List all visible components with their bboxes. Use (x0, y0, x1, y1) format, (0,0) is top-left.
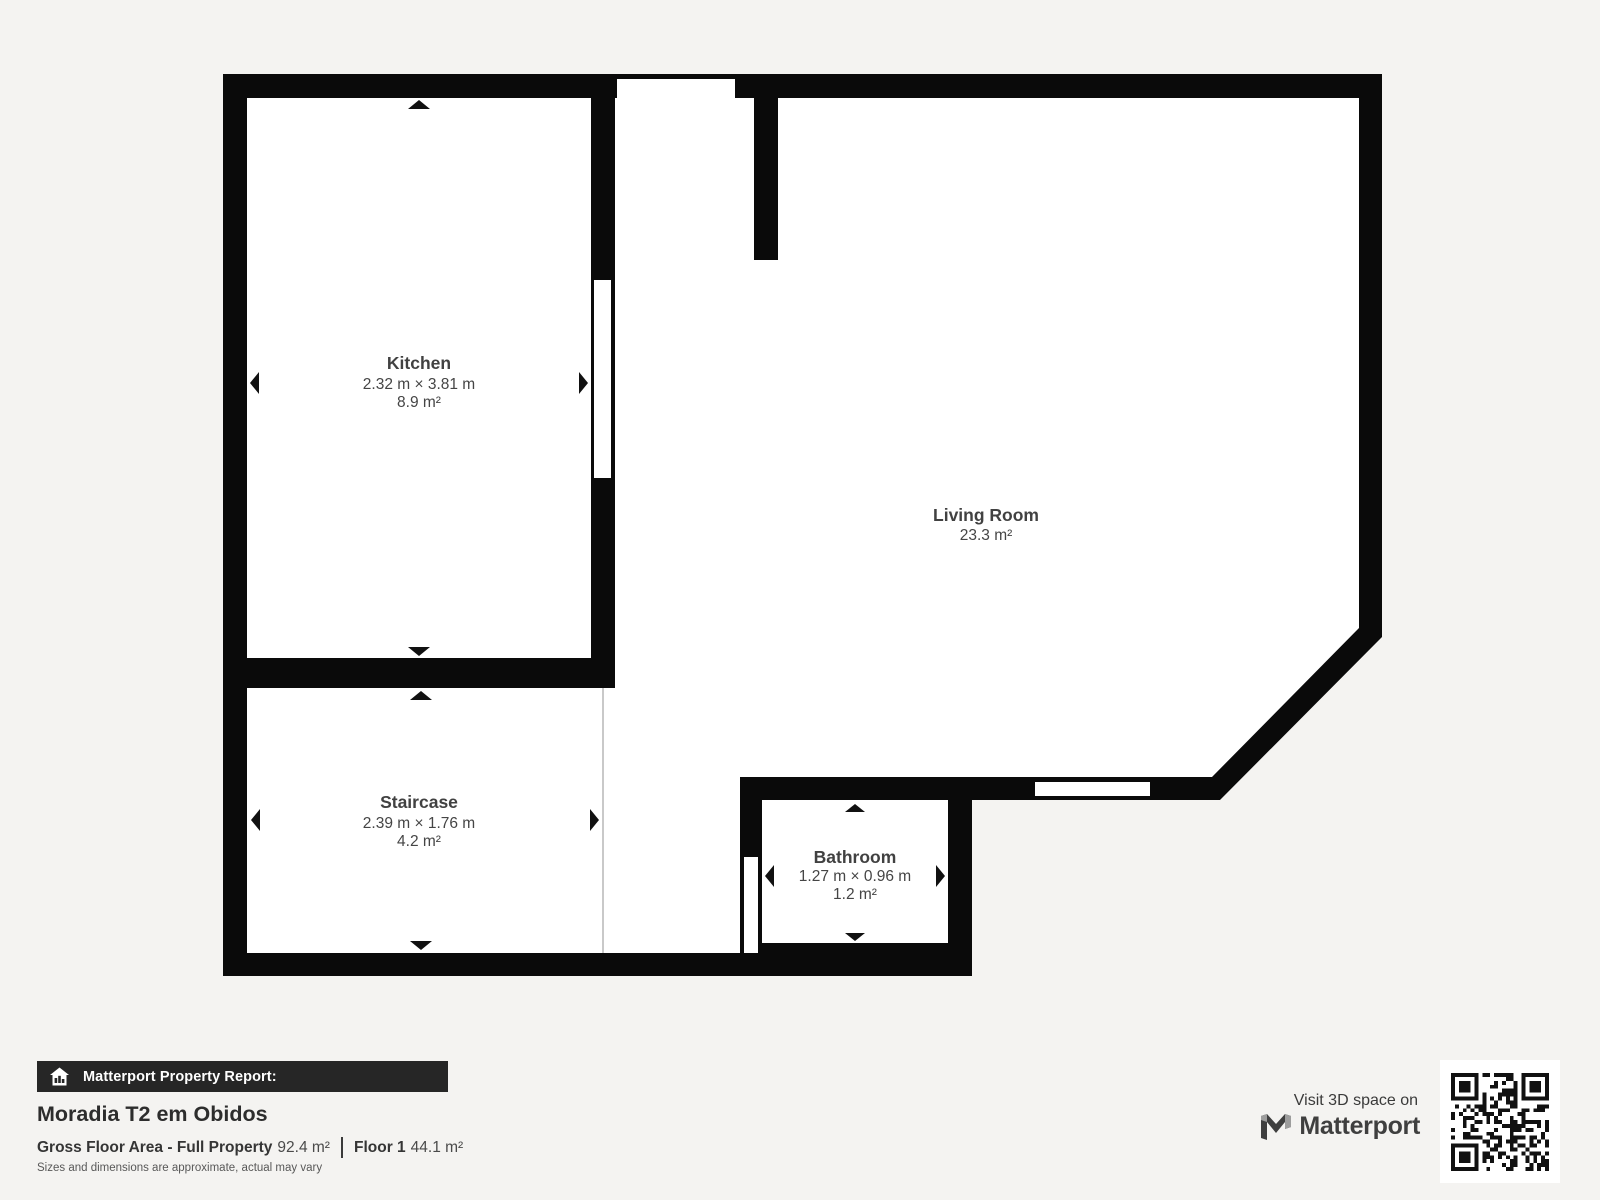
room-label-bathroom-area: 1.2 m² (833, 886, 877, 903)
room-label-kitchen-name: Kitchen (387, 353, 451, 373)
staircase-boundary-line (602, 688, 604, 953)
bathroom-door-jamb-left (740, 857, 744, 953)
kitchen-east-wall-lower (591, 478, 615, 658)
matterport-logo-icon (1261, 1114, 1291, 1140)
room-label-staircase-dimensions: 2.39 m × 1.76 m (363, 815, 475, 832)
disclaimer-text: Sizes and dimensions are approximate, ac… (37, 1162, 322, 1174)
bathroom-west-wall-upper (740, 800, 762, 857)
kitchen-east-wall-upper (591, 98, 615, 280)
entry-corridor-wall (754, 98, 778, 260)
room-label-livingroom-name: Living Room (933, 505, 1039, 525)
floor-plan: Kitchen 2.32 m × 3.81 m 8.9 m² Living Ro… (0, 0, 1600, 1010)
kitchen-window-jamb-right (611, 280, 615, 478)
report-title-bar: Matterport Property Report: (37, 1061, 448, 1092)
bathroom-south-wall (762, 943, 948, 955)
entry-door-opening (617, 79, 735, 98)
matterport-brand: Matterport (1261, 1112, 1420, 1141)
qr-code-card (1440, 1060, 1560, 1183)
livingroom-south-wall (740, 777, 948, 800)
property-title: Moradia T2 em Obidos (37, 1102, 268, 1127)
floorplan-report-page: { "plan": { "rooms": [ { "name": "Kitche… (0, 0, 1600, 1200)
room-label-staircase-name: Staircase (380, 792, 458, 812)
gross-floor-area-label: Gross Floor Area - Full Property (37, 1139, 272, 1157)
room-label-bathroom-name: Bathroom (814, 847, 897, 867)
report-bar-label: Matterport Property Report: (83, 1069, 277, 1085)
room-label-bathroom-dimensions: 1.27 m × 0.96 m (799, 868, 911, 885)
stats-divider (341, 1137, 343, 1158)
room-label-kitchen-area: 8.9 m² (397, 394, 441, 411)
kitchen-window-jamb-left (591, 280, 594, 478)
bathroom-door-jamb-right (758, 857, 762, 953)
room-label-staircase-area: 4.2 m² (397, 833, 441, 850)
livingroom-window-opening (1035, 782, 1150, 796)
room-label-kitchen-dimensions: 2.32 m × 3.81 m (363, 376, 475, 393)
floor-label: Floor 1 (354, 1139, 406, 1157)
house-report-icon (49, 1067, 70, 1086)
floor-area-value: 44.1 m² (411, 1139, 464, 1157)
area-stats-line: Gross Floor Area - Full Property 92.4 m²… (37, 1137, 463, 1158)
visit-3d-space-text: Visit 3D space on (1294, 1092, 1418, 1110)
gross-floor-area-value: 92.4 m² (277, 1139, 330, 1157)
room-label-livingroom-area: 23.3 m² (960, 527, 1013, 544)
qr-code (1451, 1073, 1549, 1171)
kitchen-staircase-wall (247, 658, 615, 688)
matterport-wordmark: Matterport (1299, 1112, 1420, 1141)
